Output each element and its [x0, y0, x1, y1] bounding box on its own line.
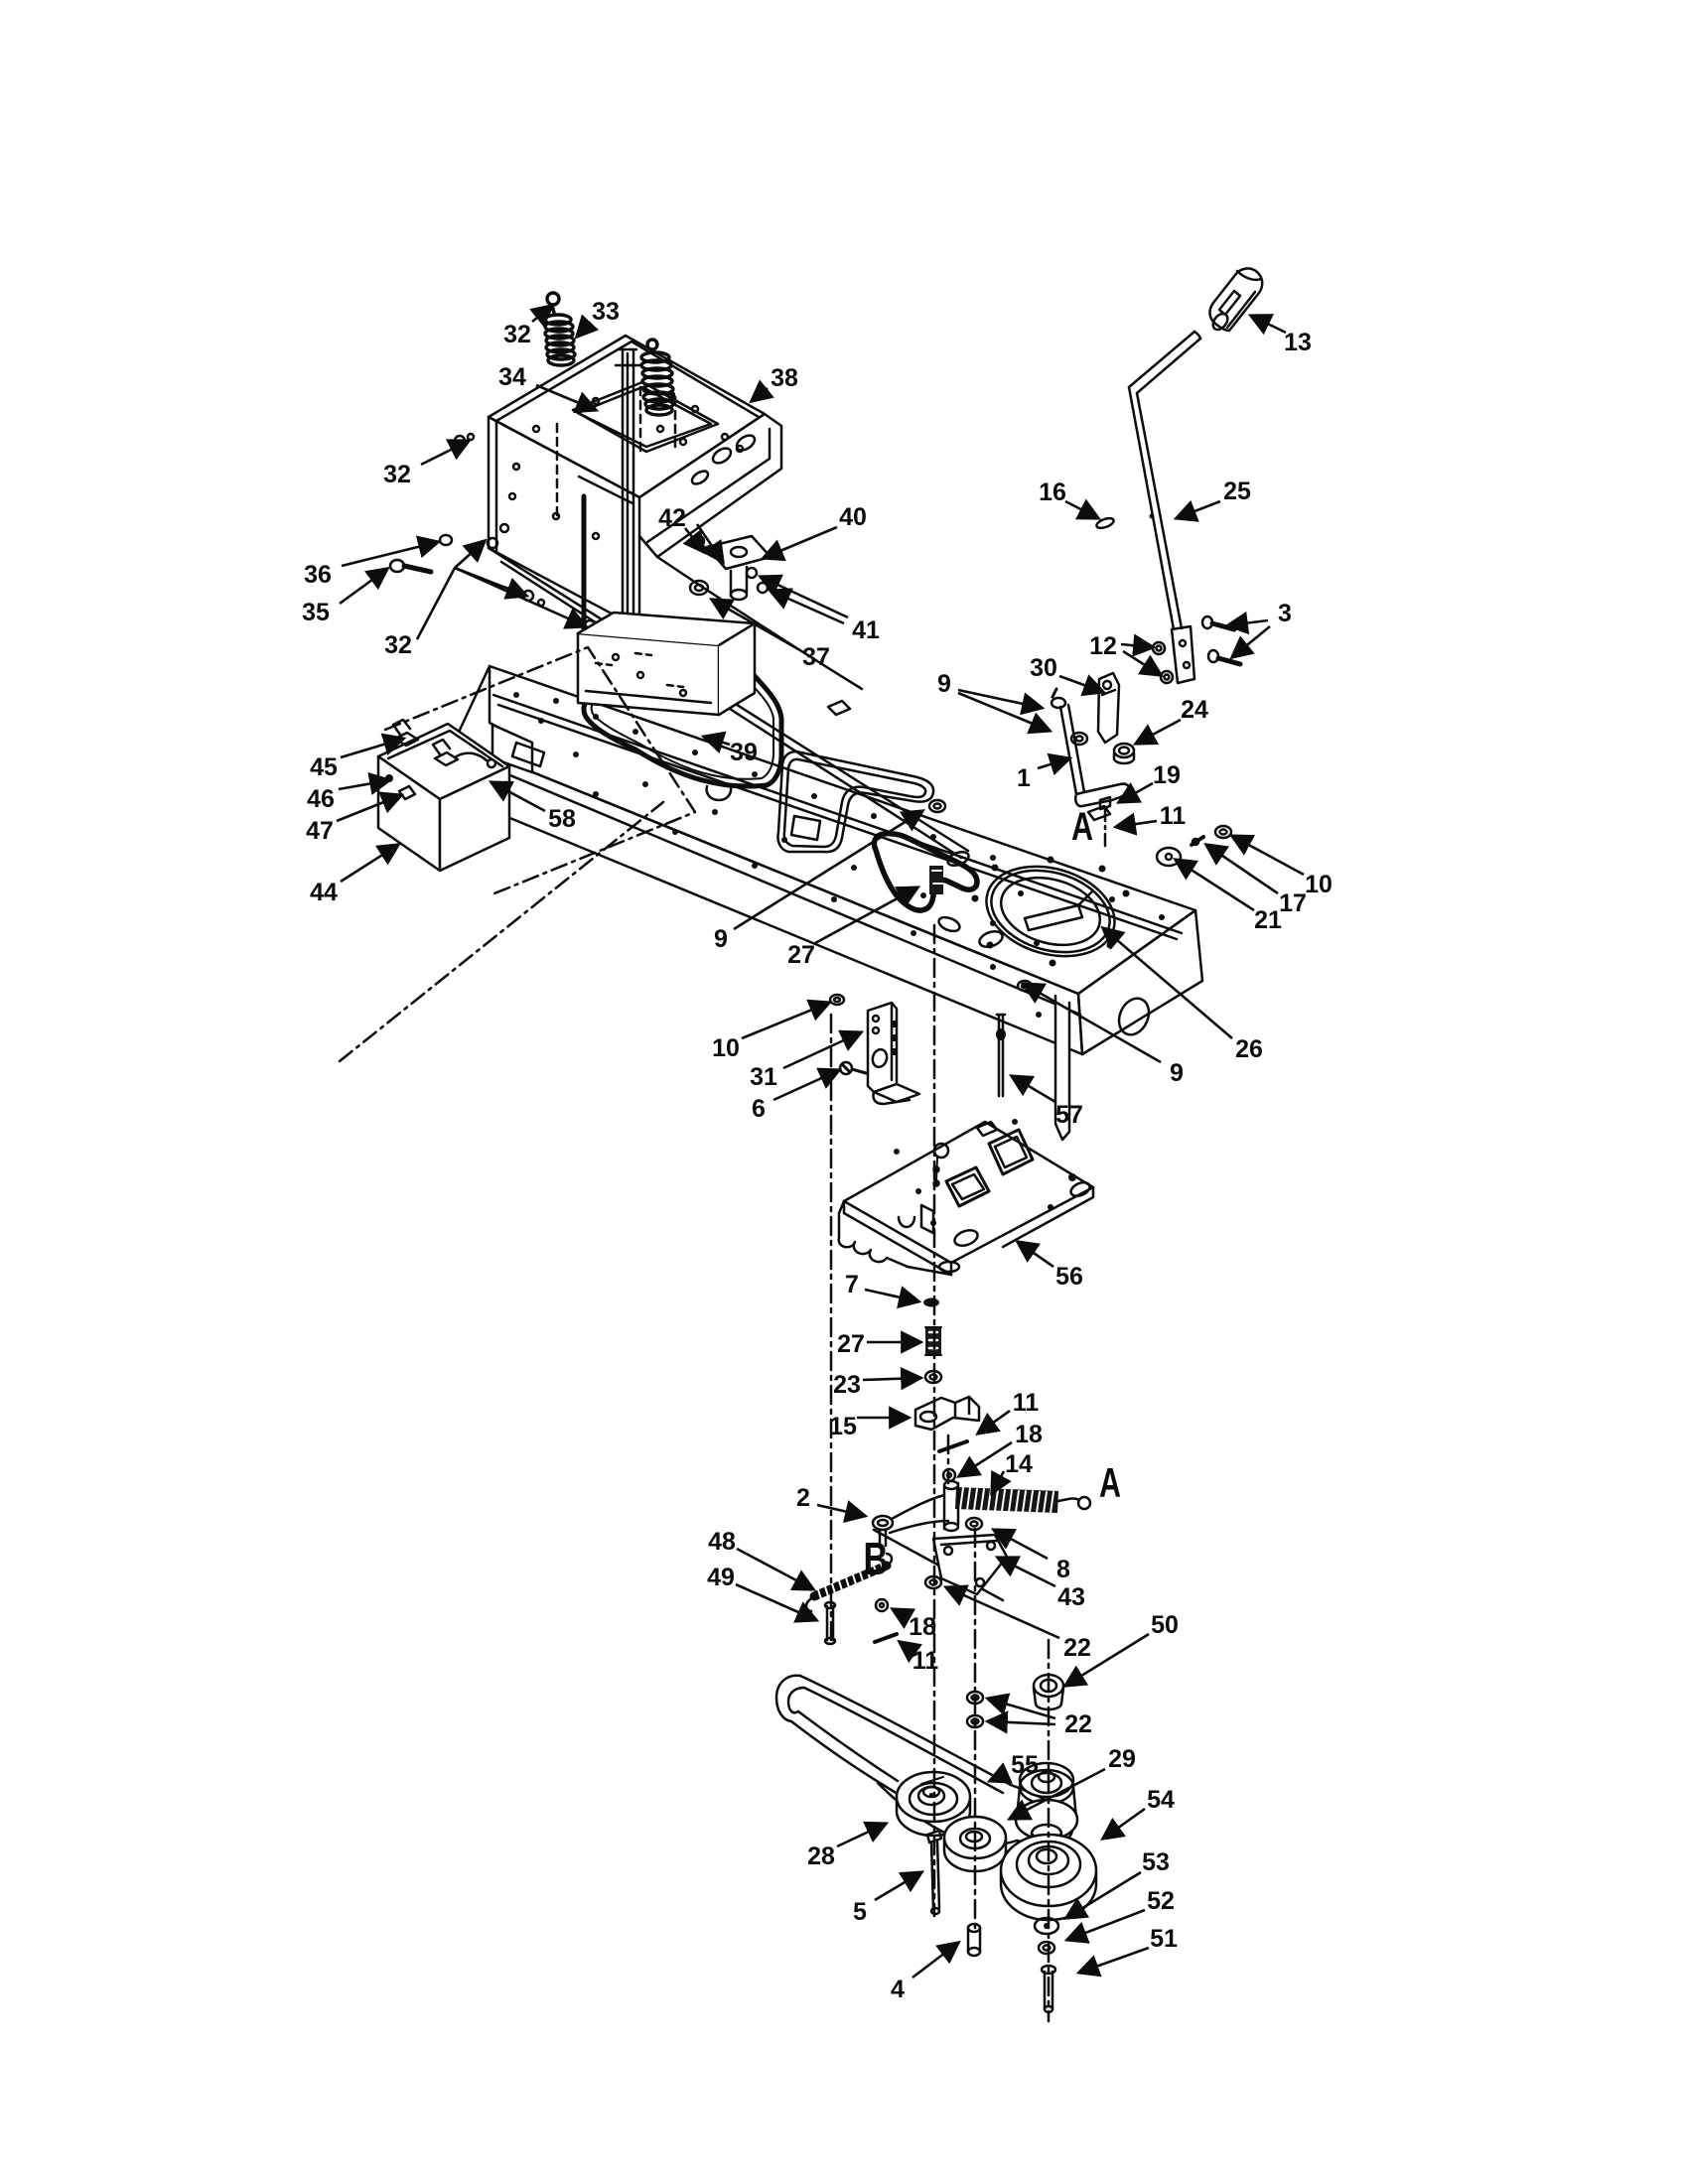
svg-text:A: A — [1071, 805, 1093, 849]
svg-text:21: 21 — [1254, 906, 1282, 934]
svg-text:9: 9 — [714, 925, 728, 953]
svg-text:26: 26 — [1235, 1035, 1263, 1063]
svg-text:28: 28 — [807, 1843, 835, 1870]
svg-text:37: 37 — [802, 643, 830, 671]
svg-text:11: 11 — [1013, 1389, 1040, 1417]
svg-text:4: 4 — [891, 1976, 905, 2003]
svg-text:48: 48 — [708, 1528, 736, 1556]
svg-text:41: 41 — [852, 616, 880, 644]
svg-text:13: 13 — [1284, 329, 1312, 356]
svg-text:9: 9 — [937, 670, 951, 698]
svg-text:46: 46 — [307, 785, 335, 813]
svg-text:24: 24 — [1181, 696, 1208, 724]
svg-text:35: 35 — [302, 599, 330, 626]
svg-text:A: A — [1099, 1459, 1121, 1506]
svg-text:31: 31 — [750, 1063, 777, 1091]
svg-text:32: 32 — [503, 321, 531, 348]
svg-text:10: 10 — [712, 1034, 740, 1062]
svg-text:40: 40 — [839, 503, 867, 531]
svg-text:22: 22 — [1063, 1634, 1091, 1662]
svg-text:9: 9 — [1170, 1059, 1184, 1087]
svg-text:54: 54 — [1147, 1786, 1175, 1814]
svg-text:11: 11 — [1160, 802, 1187, 830]
svg-text:3: 3 — [1278, 600, 1292, 627]
svg-text:39: 39 — [730, 739, 758, 766]
svg-text:49: 49 — [707, 1564, 735, 1591]
svg-text:23: 23 — [833, 1371, 861, 1399]
svg-text:18: 18 — [1015, 1421, 1043, 1448]
svg-text:18: 18 — [909, 1613, 936, 1641]
svg-text:38: 38 — [771, 364, 798, 392]
svg-text:22: 22 — [1064, 1710, 1092, 1738]
svg-text:19: 19 — [1153, 761, 1181, 789]
svg-text:52: 52 — [1147, 1887, 1175, 1915]
svg-text:10: 10 — [1305, 871, 1333, 898]
svg-text:30: 30 — [1030, 654, 1057, 682]
svg-text:57: 57 — [1055, 1101, 1083, 1129]
svg-text:34: 34 — [498, 363, 526, 391]
svg-text:27: 27 — [787, 941, 815, 969]
svg-text:17: 17 — [1279, 889, 1307, 917]
svg-text:5: 5 — [853, 1898, 867, 1926]
svg-text:42: 42 — [658, 504, 686, 532]
svg-text:B: B — [864, 1533, 889, 1584]
svg-text:33: 33 — [592, 298, 620, 326]
svg-text:51: 51 — [1150, 1925, 1178, 1953]
svg-text:47: 47 — [306, 817, 334, 845]
svg-text:55: 55 — [1011, 1751, 1039, 1779]
svg-text:8: 8 — [1056, 1556, 1070, 1583]
svg-text:1: 1 — [1017, 764, 1031, 792]
svg-text:14: 14 — [1005, 1450, 1033, 1478]
svg-text:11: 11 — [912, 1647, 939, 1675]
svg-text:58: 58 — [548, 805, 576, 833]
svg-text:25: 25 — [1223, 478, 1251, 505]
svg-text:15: 15 — [829, 1413, 857, 1440]
svg-text:2: 2 — [796, 1484, 810, 1512]
svg-text:6: 6 — [752, 1095, 766, 1123]
svg-text:32: 32 — [384, 631, 412, 659]
svg-text:16: 16 — [1039, 478, 1066, 506]
svg-text:53: 53 — [1142, 1848, 1170, 1876]
svg-text:7: 7 — [845, 1271, 859, 1298]
svg-text:50: 50 — [1151, 1611, 1179, 1639]
svg-text:27: 27 — [837, 1330, 865, 1358]
svg-text:43: 43 — [1057, 1583, 1085, 1611]
svg-text:32: 32 — [383, 461, 411, 488]
svg-text:29: 29 — [1108, 1745, 1136, 1773]
svg-text:44: 44 — [310, 879, 338, 906]
svg-text:56: 56 — [1055, 1263, 1083, 1291]
svg-text:45: 45 — [310, 753, 338, 781]
svg-text:12: 12 — [1089, 632, 1117, 660]
svg-text:36: 36 — [304, 561, 332, 589]
